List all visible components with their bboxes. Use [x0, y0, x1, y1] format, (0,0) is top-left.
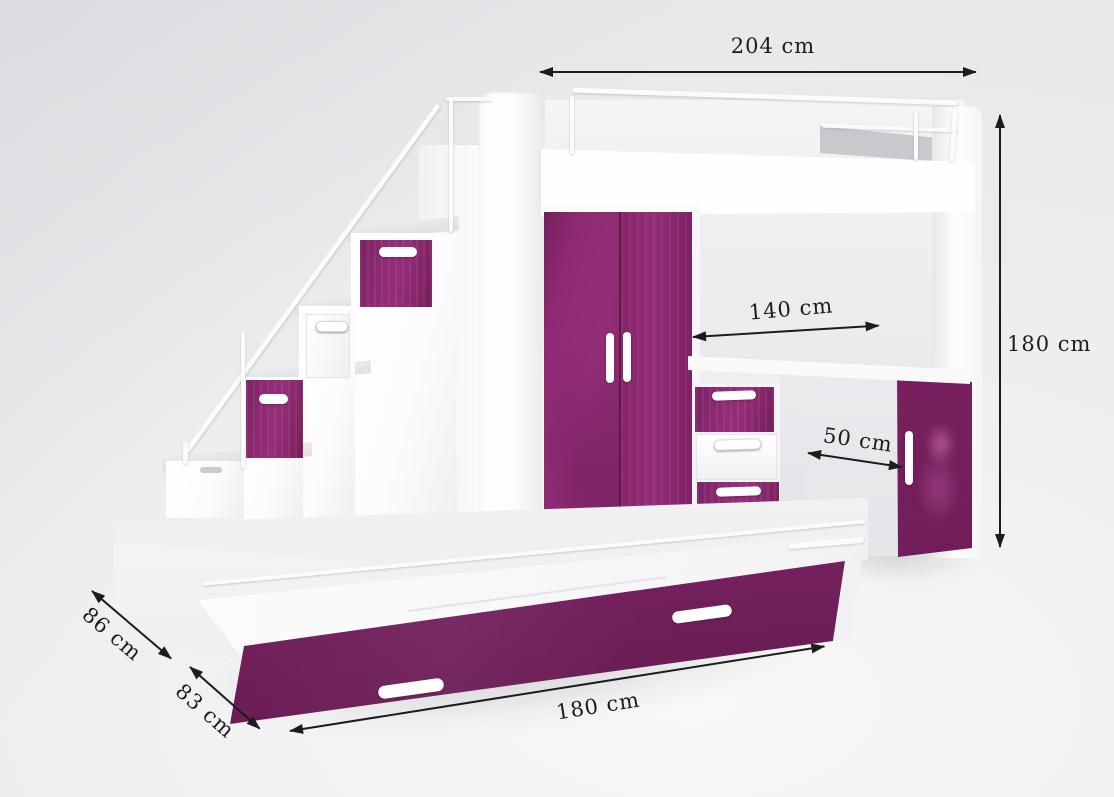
chest-drawer-middle-handle	[714, 438, 761, 451]
chest-drawer-bottom-handle	[716, 486, 761, 497]
handrail-upper-post	[449, 100, 453, 232]
stair-drawer-3-handle	[316, 321, 348, 332]
chest-drawer-top-handle	[712, 390, 756, 401]
overall-width-label: 204 cm	[703, 34, 843, 58]
overall-height-label: 180 cm	[1007, 332, 1087, 356]
handrail-post	[241, 332, 245, 468]
overall-height-arrow-icon	[999, 115, 1001, 547]
stair-drawer-1-handle	[200, 467, 222, 473]
overall-width-arrow-icon	[540, 71, 976, 73]
wardrobe-left-handle	[606, 333, 614, 383]
wardrobe-right-handle	[623, 332, 631, 382]
bed-left-side-panel	[477, 92, 541, 554]
stair-drawer-4-handle	[379, 247, 417, 257]
stair-drawer-2-handle	[259, 394, 288, 404]
handrail-end-hook	[183, 442, 188, 464]
guardrail-mid-post	[914, 112, 918, 160]
product-render: 204 cm 180 cm 140 cm 50 cm 86 cm 83 cm 1…	[0, 0, 1114, 797]
guardrail-left-post	[570, 96, 574, 154]
stair-drawer-2	[246, 380, 303, 458]
wardrobe-door-right	[621, 212, 692, 538]
teddy-bear-reflection	[912, 425, 964, 530]
